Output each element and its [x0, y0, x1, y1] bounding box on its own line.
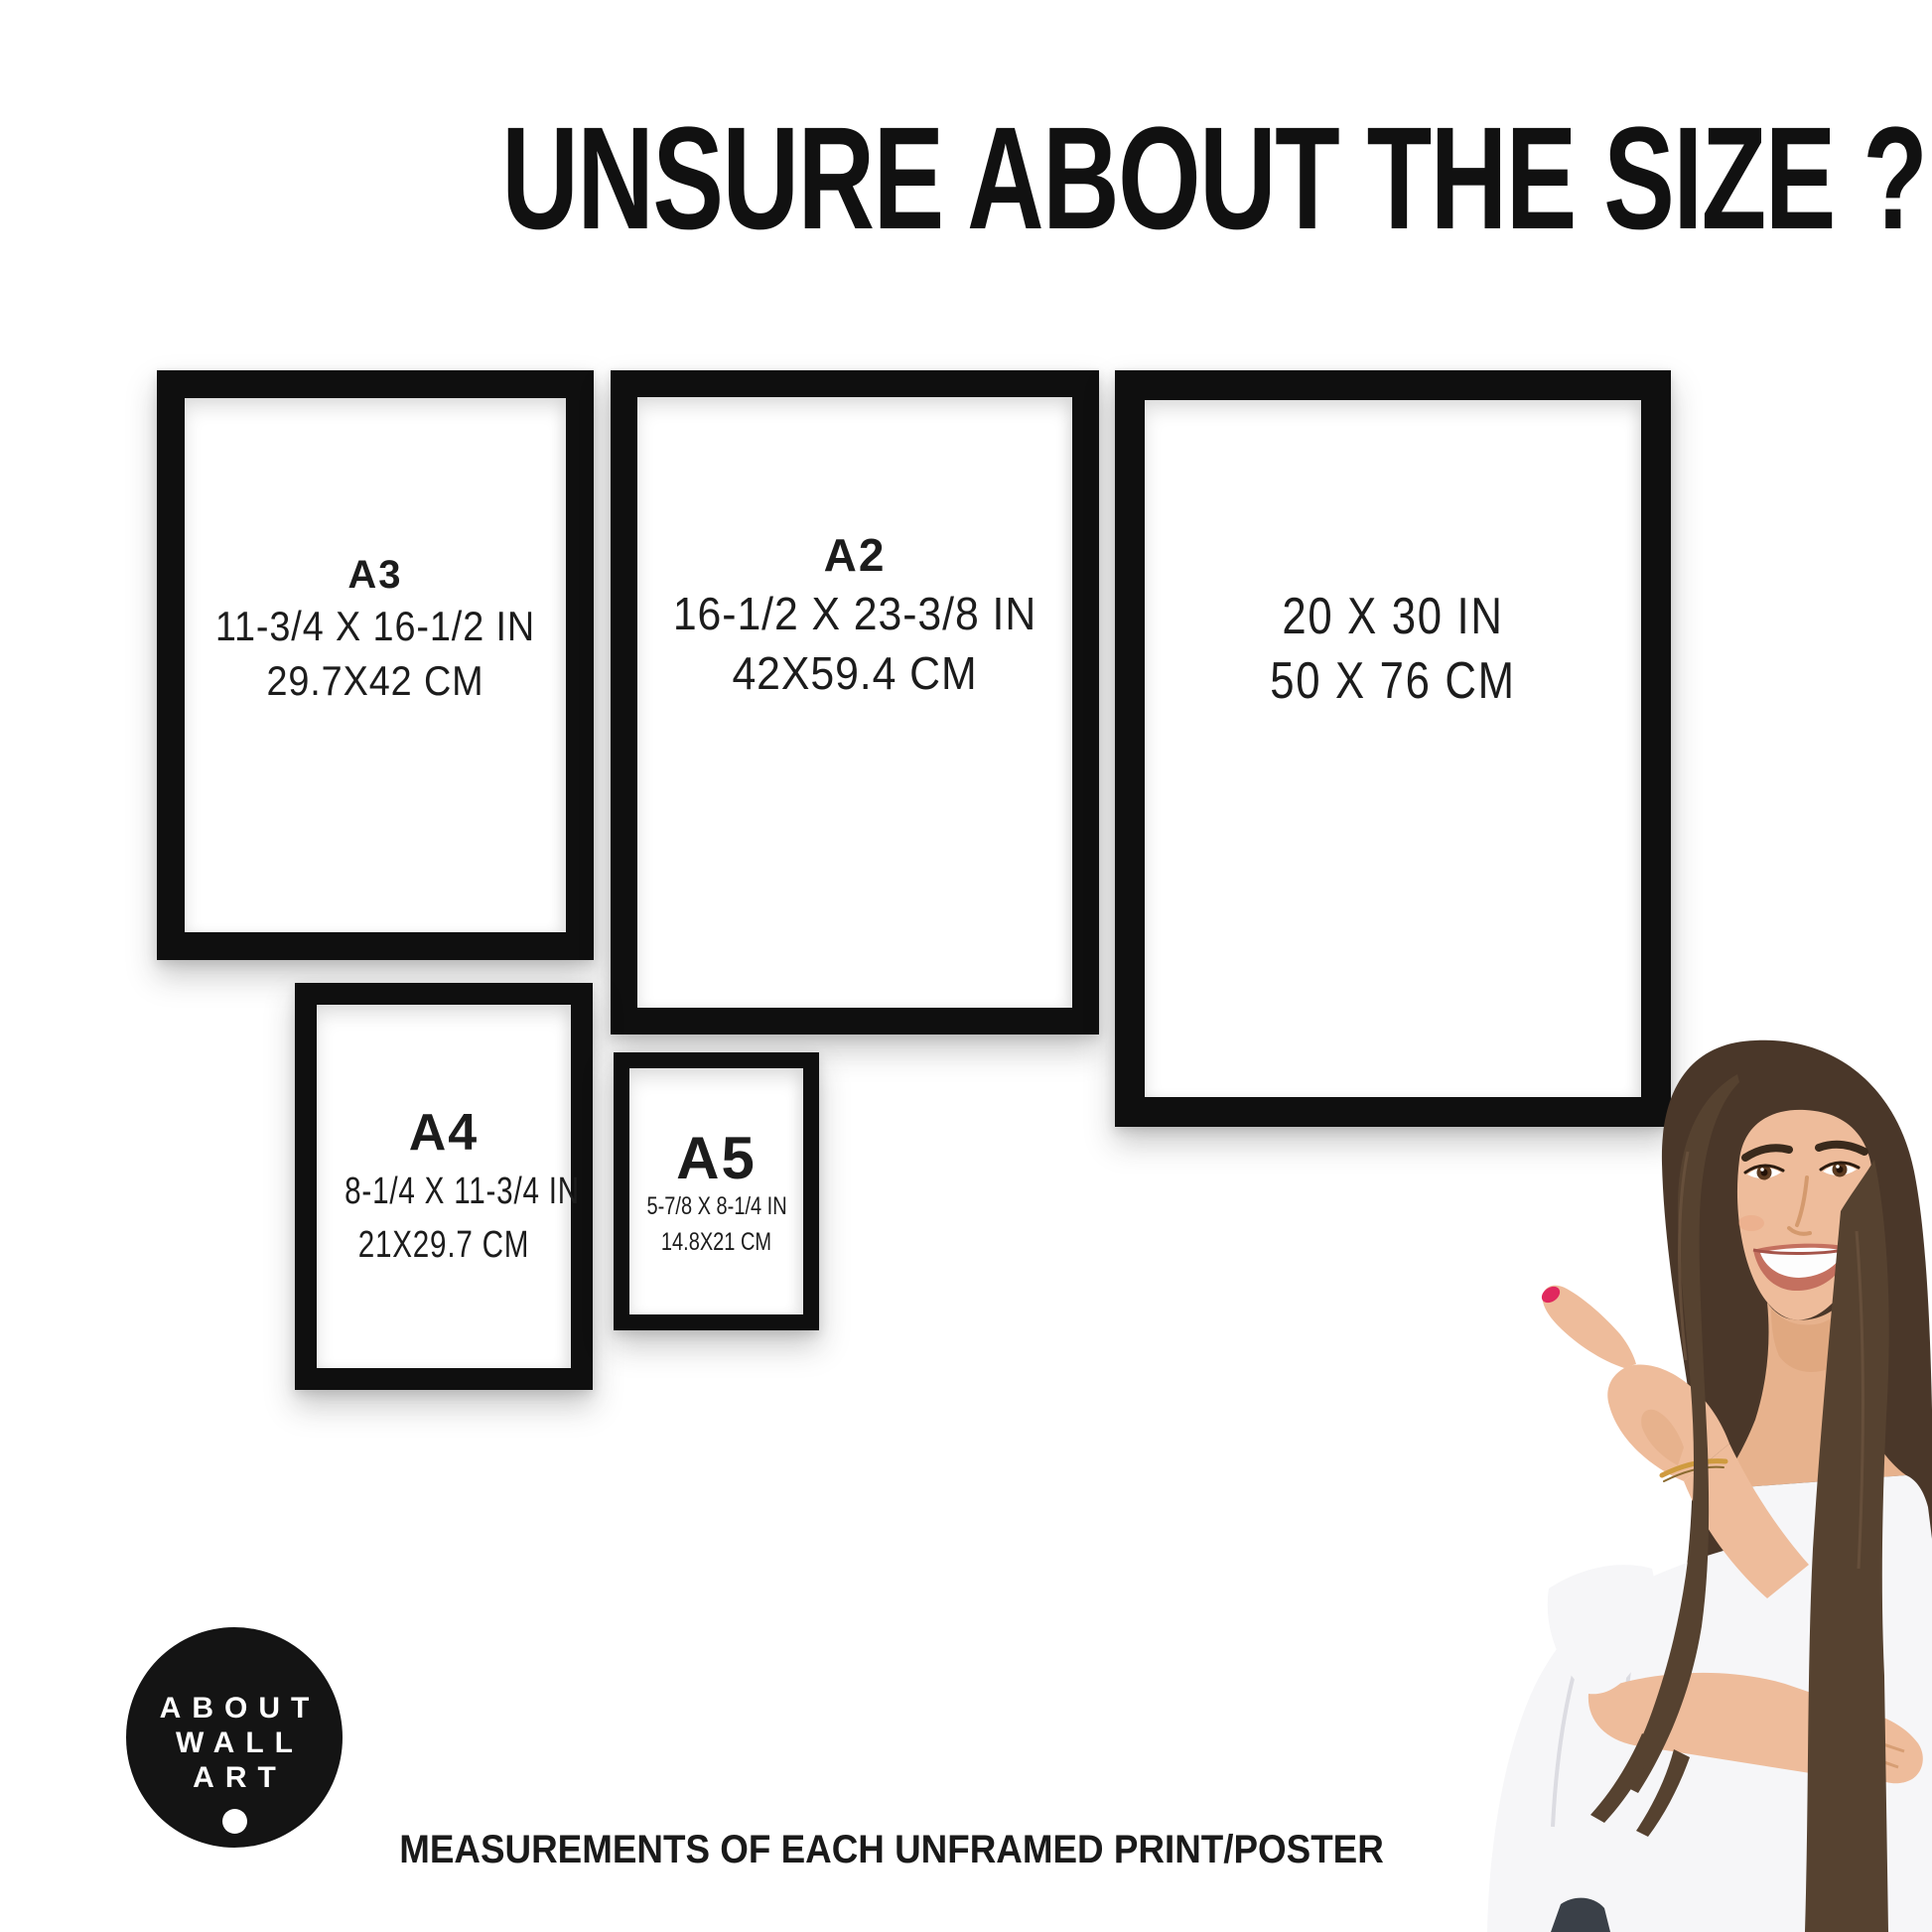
size-label: A3 — [185, 551, 566, 599]
size-cm: 21X29.7 CM — [345, 1218, 543, 1272]
frame-a2-mat: A2 16-1/2 X 23-3/8 IN 42X59.4 CM — [637, 397, 1072, 1008]
size-inches: 11-3/4 X 16-1/2 IN — [204, 599, 547, 653]
size-label: A5 — [629, 1129, 803, 1188]
frame-a4-text: A4 8-1/4 X 11-3/4 IN 21X29.7 CM — [317, 1102, 571, 1272]
frame-a2-text: A2 16-1/2 X 23-3/8 IN 42X59.4 CM — [637, 527, 1072, 703]
size-label: A2 — [637, 527, 1072, 584]
frame-a5: A5 5-7/8 X 8-1/4 IN 14.8X21 CM — [614, 1052, 819, 1330]
size-cm: 50 X 76 CM — [1184, 649, 1601, 714]
size-guide-poster: UNSURE ABOUT THE SIZE ? A3 11-3/4 X 16-1… — [0, 0, 1932, 1932]
brand-logo: ABOUT WALL ART — [126, 1627, 343, 1848]
size-cm: 14.8X21 CM — [647, 1224, 786, 1260]
woman-pointing-photo — [1440, 1033, 1932, 1932]
frame-a5-mat: A5 5-7/8 X 8-1/4 IN 14.8X21 CM — [629, 1068, 803, 1314]
size-cm: 42X59.4 CM — [652, 643, 1056, 703]
size-inches: 20 X 30 IN — [1184, 585, 1601, 649]
logo-word-art: ART — [126, 1760, 343, 1795]
size-label: A4 — [317, 1102, 571, 1165]
frame-a3-text: A3 11-3/4 X 16-1/2 IN 29.7X42 CM — [185, 551, 566, 708]
page-title: UNSURE ABOUT THE SIZE ? — [501, 117, 1512, 240]
logo-word-wall: WALL — [126, 1725, 343, 1760]
frame-a4-mat: A4 8-1/4 X 11-3/4 IN 21X29.7 CM — [317, 1005, 571, 1368]
frame-a3-mat: A3 11-3/4 X 16-1/2 IN 29.7X42 CM — [185, 398, 566, 932]
size-cm: 29.7X42 CM — [204, 653, 547, 708]
frame-a2: A2 16-1/2 X 23-3/8 IN 42X59.4 CM — [611, 370, 1099, 1035]
frame-20x30-text: 20 X 30 IN 50 X 76 CM — [1145, 585, 1641, 714]
size-inches: 5-7/8 X 8-1/4 IN — [647, 1188, 786, 1224]
logo-dot — [222, 1809, 247, 1834]
frame-a3: A3 11-3/4 X 16-1/2 IN 29.7X42 CM — [157, 370, 594, 960]
size-inches: 8-1/4 X 11-3/4 IN — [345, 1165, 543, 1218]
frame-a4: A4 8-1/4 X 11-3/4 IN 21X29.7 CM — [295, 983, 593, 1390]
frame-20x30: 20 X 30 IN 50 X 76 CM — [1115, 370, 1671, 1127]
logo-word-about: ABOUT — [126, 1627, 343, 1725]
frame-a5-text: A5 5-7/8 X 8-1/4 IN 14.8X21 CM — [629, 1129, 803, 1260]
footer-note: MEASUREMENTS OF EACH UNFRAMED PRINT/POST… — [380, 1825, 1403, 1874]
frame-20x30-mat: 20 X 30 IN 50 X 76 CM — [1145, 400, 1641, 1097]
size-inches: 16-1/2 X 23-3/8 IN — [652, 584, 1056, 643]
